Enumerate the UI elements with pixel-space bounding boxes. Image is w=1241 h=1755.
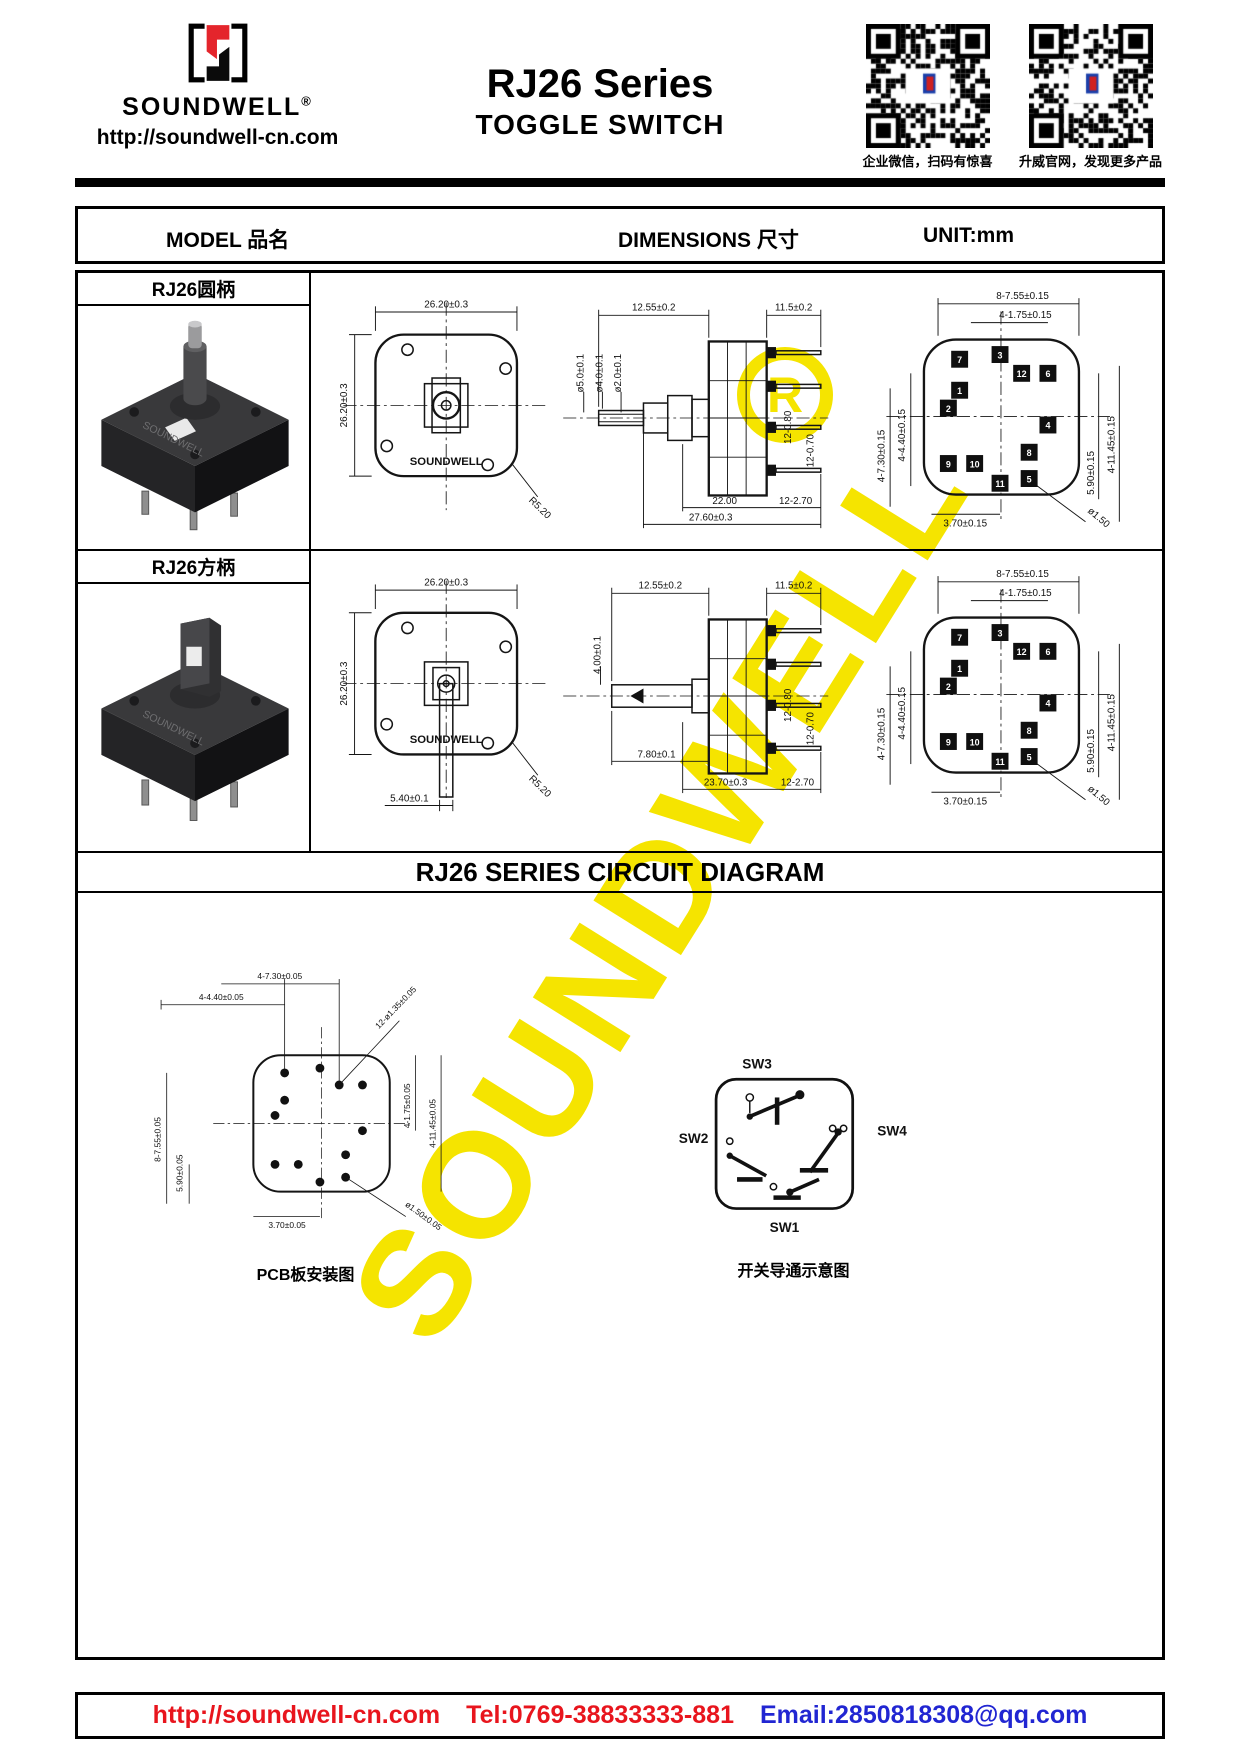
pin-marker: 11 [992,475,1009,492]
dim-label: 4-7.30±0.05 [257,971,302,981]
svg-text:8: 8 [1027,448,1032,458]
dim-label: ø1.50±0.05 [403,1199,444,1232]
dim-label: 4-1.75±0.15 [999,588,1052,599]
side-view-drawing-square: 12.55±0.2 4.00±0.1 7.80±0.1 11.5±0.2 12-… [552,565,832,813]
column-dimensions: DIMENSIONS 尺寸 [618,224,799,254]
dim-label: 26.20±0.3 [424,577,468,588]
qr-codes: 企业微信，扫码有惊喜 升威官网，发现更多产品 [856,24,1162,170]
dim-label: 26.20±0.3 [339,383,350,427]
pin-marker: 4 [1039,695,1056,712]
dim-label: 12-2.70 [779,496,813,507]
page-content: SOUNDWELL® http://soundwell-cn.com RJ26 … [0,0,1241,1755]
pin-marker: 9 [940,733,957,750]
product-photo-square: SOUNDWELL [84,589,306,829]
dim-label: 26.20±0.3 [339,661,350,705]
model-cell-round: RJ26圆柄 [78,273,311,549]
brand-name: SOUNDWELL [122,93,301,121]
dim-label: 4-4.40±0.15 [897,409,908,462]
dim-label: 5.90±0.15 [1086,729,1097,773]
drawing-brand-text: SOUNDWELL [410,734,483,746]
switch-sw4 [800,1125,847,1172]
spec-table: RJ26圆柄 [75,270,1165,1660]
dim-label: 3.70±0.05 [268,1220,306,1230]
sw2-label: SW2 [679,1131,709,1146]
registered-mark: ® [301,94,313,109]
model-row-square: RJ26方柄 [78,551,1162,853]
dim-label: ø1.50 [1085,506,1112,531]
svg-text:2: 2 [946,404,951,414]
footer-bar: http://soundwell-cn.com Tel:0769-3883333… [75,1692,1165,1739]
dim-label: 5.90±0.15 [1086,451,1097,495]
pin-marker: 5 [1021,470,1038,487]
pin-view-drawing-round: 8-7.55±0.15 4-1.75±0.15 4-4.40±0.15 4-7.… [830,285,1140,534]
svg-text:4: 4 [1045,421,1050,431]
dim-label: ø2.0±0.1 [613,354,624,393]
brand-name-line: SOUNDWELL® [90,93,345,122]
footer-url[interactable]: http://soundwell-cn.com [153,1701,441,1730]
svg-text:11: 11 [995,479,1004,489]
dim-label: 4-1.75±0.05 [402,1083,412,1128]
dim-label: 8-7.55±0.05 [152,1117,162,1162]
svg-text:7: 7 [957,633,962,643]
dim-label: 8-7.55±0.15 [996,569,1049,580]
qr-item-wechat: 企业微信，扫码有惊喜 [856,24,999,170]
dim-label: 4-4.40±0.15 [897,687,908,740]
svg-text:12: 12 [1017,647,1027,657]
dim-label: R5.20 [526,495,552,522]
switch-sw2 [727,1138,767,1179]
dim-label: 23.70±0.3 [704,778,748,789]
pin-marker: 7 [951,351,968,368]
dim-label: 4-7.30±0.15 [876,429,887,482]
table-header: MODEL 品名 DIMENSIONS 尺寸 UNIT:mm [75,206,1165,264]
svg-text:3: 3 [998,350,1003,360]
top-view-drawing-square: 26.20±0.3 26.20±0.3 R5.20 5.40±0.1 SOUND… [330,573,552,833]
dim-label: 4-7.30±0.15 [876,707,887,760]
pin-marker: 1 [951,382,968,399]
dim-label: 12-0.80 [783,410,794,444]
svg-text:3: 3 [998,628,1003,638]
soundwell-logo-icon [185,20,251,86]
pin-marker: 4 [1039,417,1056,434]
svg-text:4: 4 [1045,699,1050,709]
dim-label: 12.55±0.2 [632,303,676,314]
column-model: MODEL 品名 [166,224,289,254]
dim-label: 8-7.55±0.15 [996,291,1049,302]
pin-marker: 2 [940,400,957,417]
model-name-round: RJ26圆柄 [78,273,309,306]
dim-label: 12-0.80 [783,688,794,722]
qr-code-wechat-icon [866,24,990,148]
svg-text:12: 12 [1017,369,1027,379]
top-view-drawing-round: 26.20±0.3 26.20±0.3 R5.20 SOUNDWELL [330,295,552,545]
svg-text:10: 10 [970,737,980,747]
dim-label: 12-0.70 [805,434,816,468]
pin-marker: 5 [1021,748,1038,765]
svg-text:5: 5 [1027,474,1032,484]
product-photo-round: SOUNDWELL [84,311,306,539]
pin-marker: 6 [1039,643,1056,660]
dim-label: 12.55±0.2 [639,581,683,592]
pin-marker: 8 [1021,444,1038,461]
dim-label: 11.5±0.2 [775,303,812,314]
qr-caption-website: 升威官网，发现更多产品 [1019,151,1162,170]
pin-marker: 9 [940,455,957,472]
circuit-section: 4-7.30±0.05 4-4.40±0.05 12-ø1.35±0.05 4-… [78,893,1162,1660]
dim-label: 5.40±0.1 [390,794,429,805]
dim-label: 27.60±0.3 [689,513,733,524]
svg-text:6: 6 [1045,647,1050,657]
svg-text:11: 11 [995,757,1004,767]
pin-marker: 12 [1013,643,1030,660]
qr-item-website: 升威官网，发现更多产品 [1019,24,1162,170]
svg-text:10: 10 [970,459,980,469]
dim-label: ø4.0±0.1 [594,354,605,393]
svg-text:2: 2 [946,682,951,692]
switch-circuit-drawing: SW3 SW4 SW2 SW1 [666,1041,921,1255]
dim-label: 4-11.45±0.15 [1107,694,1118,752]
switch-sw1 [770,1179,819,1197]
dim-label: ø1.50 [1085,784,1112,809]
svg-text:6: 6 [1045,369,1050,379]
dim-label: 3.70±0.15 [943,518,987,529]
qr-caption-wechat: 企业微信，扫码有惊喜 [856,151,999,170]
svg-text:9: 9 [946,737,951,747]
brand-url[interactable]: http://soundwell-cn.com [90,126,345,150]
pin-marker: 11 [992,753,1009,770]
model-row-round: RJ26圆柄 [78,273,1162,551]
svg-text:5: 5 [1027,752,1032,762]
sw4-label: SW4 [877,1124,907,1139]
dim-label: 3.70±0.15 [943,796,987,807]
pin-marker: 6 [1039,365,1056,382]
svg-text:7: 7 [957,355,962,365]
switch-sw3 [746,1090,804,1125]
pin-marker: 1 [951,660,968,677]
dim-label: 22.00 [712,496,737,507]
qr-code-website-icon [1029,24,1153,148]
dim-label: 4-4.40±0.05 [199,992,244,1002]
dim-label: R5.20 [526,774,552,801]
pin-marker: 3 [992,346,1009,363]
pin-marker: 3 [992,624,1009,641]
column-unit: UNIT:mm [923,224,1014,248]
switch-caption: 开关导通示意图 [666,1257,921,1281]
side-view-drawing-round: 12.55±0.2 ø5.0±0.1 ø4.0±0.1 ø2.0±0.1 11.… [552,287,832,535]
dim-label: 11.5±0.2 [775,581,812,592]
pcb-caption: PCB板安装图 [133,1261,478,1285]
svg-text:8: 8 [1027,726,1032,736]
pin-view-drawing-square: 8-7.55±0.15 4-1.75±0.15 4-4.40±0.15 4-7.… [830,563,1140,812]
pin-marker: 8 [1021,722,1038,739]
dim-label: 12-ø1.35±0.05 [373,984,418,1030]
datasheet-page: SOUNDWELL R SOUNDWELL® http://soundwell-… [0,0,1241,1755]
dim-label: 4.00±0.1 [593,636,604,674]
pin-marker: 12 [1013,365,1030,382]
dim-label: 12-0.70 [805,712,816,746]
dim-label: 4-1.75±0.15 [999,310,1052,321]
dim-label: 4-11.45±0.05 [427,1099,437,1148]
dim-label: 7.80±0.1 [637,750,675,761]
footer-email[interactable]: Email:2850818308@qq.com [760,1701,1087,1730]
dim-label: 26.20±0.3 [424,299,468,310]
sw3-label: SW3 [742,1056,772,1071]
dim-label: ø5.0±0.1 [576,354,587,393]
svg-text:1: 1 [957,664,962,674]
model-name-square: RJ26方柄 [78,551,309,584]
product-type: TOGGLE SWITCH [415,109,785,141]
dim-label: 12-2.70 [781,778,815,789]
circuit-section-title: RJ26 SERIES CIRCUIT DIAGRAM [78,853,1162,893]
pcb-layout-drawing: 4-7.30±0.05 4-4.40±0.05 12-ø1.35±0.05 4-… [133,963,478,1240]
brand-block: SOUNDWELL® http://soundwell-cn.com [90,20,345,150]
svg-text:9: 9 [946,459,951,469]
drawing-brand-text: SOUNDWELL [410,456,483,468]
pin-marker: 7 [951,629,968,646]
pcb-holes [271,1064,367,1187]
svg-text:1: 1 [957,386,962,396]
model-cell-square: RJ26方柄 [78,551,311,851]
footer-tel: Tel:0769-38833333-881 [466,1701,734,1730]
series-title: RJ26 Series [415,62,785,107]
pin-marker: 10 [966,455,983,472]
header-divider [75,178,1165,187]
pin-marker: 2 [940,678,957,695]
dim-label: 5.90±0.05 [175,1154,185,1192]
pin-marker: 10 [966,733,983,750]
sw1-label: SW1 [770,1220,800,1235]
title-block: RJ26 Series TOGGLE SWITCH [415,62,785,141]
dim-label: 4-11.45±0.15 [1107,416,1118,474]
